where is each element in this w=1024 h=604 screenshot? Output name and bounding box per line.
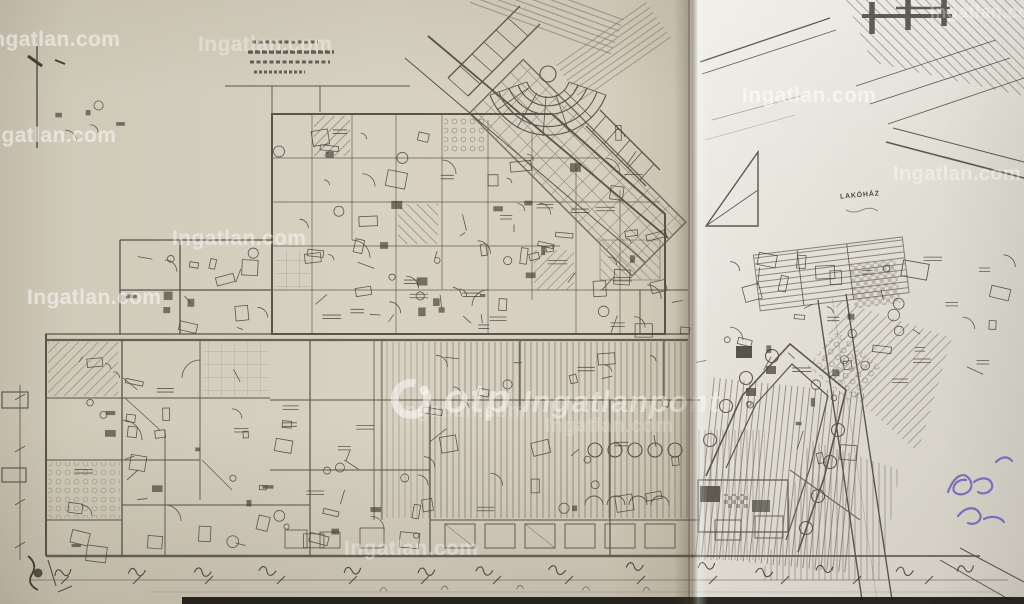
- plan-ink-layer: [2, 0, 1024, 604]
- floorplan-photo: Ingatlan.com Ingatlan.com Ingatlan.com I…: [0, 0, 1024, 604]
- photo-bottom-edge: [182, 597, 1024, 604]
- blue-pen-scribble: [948, 457, 1012, 524]
- floorplan-drawing: [0, 0, 1024, 604]
